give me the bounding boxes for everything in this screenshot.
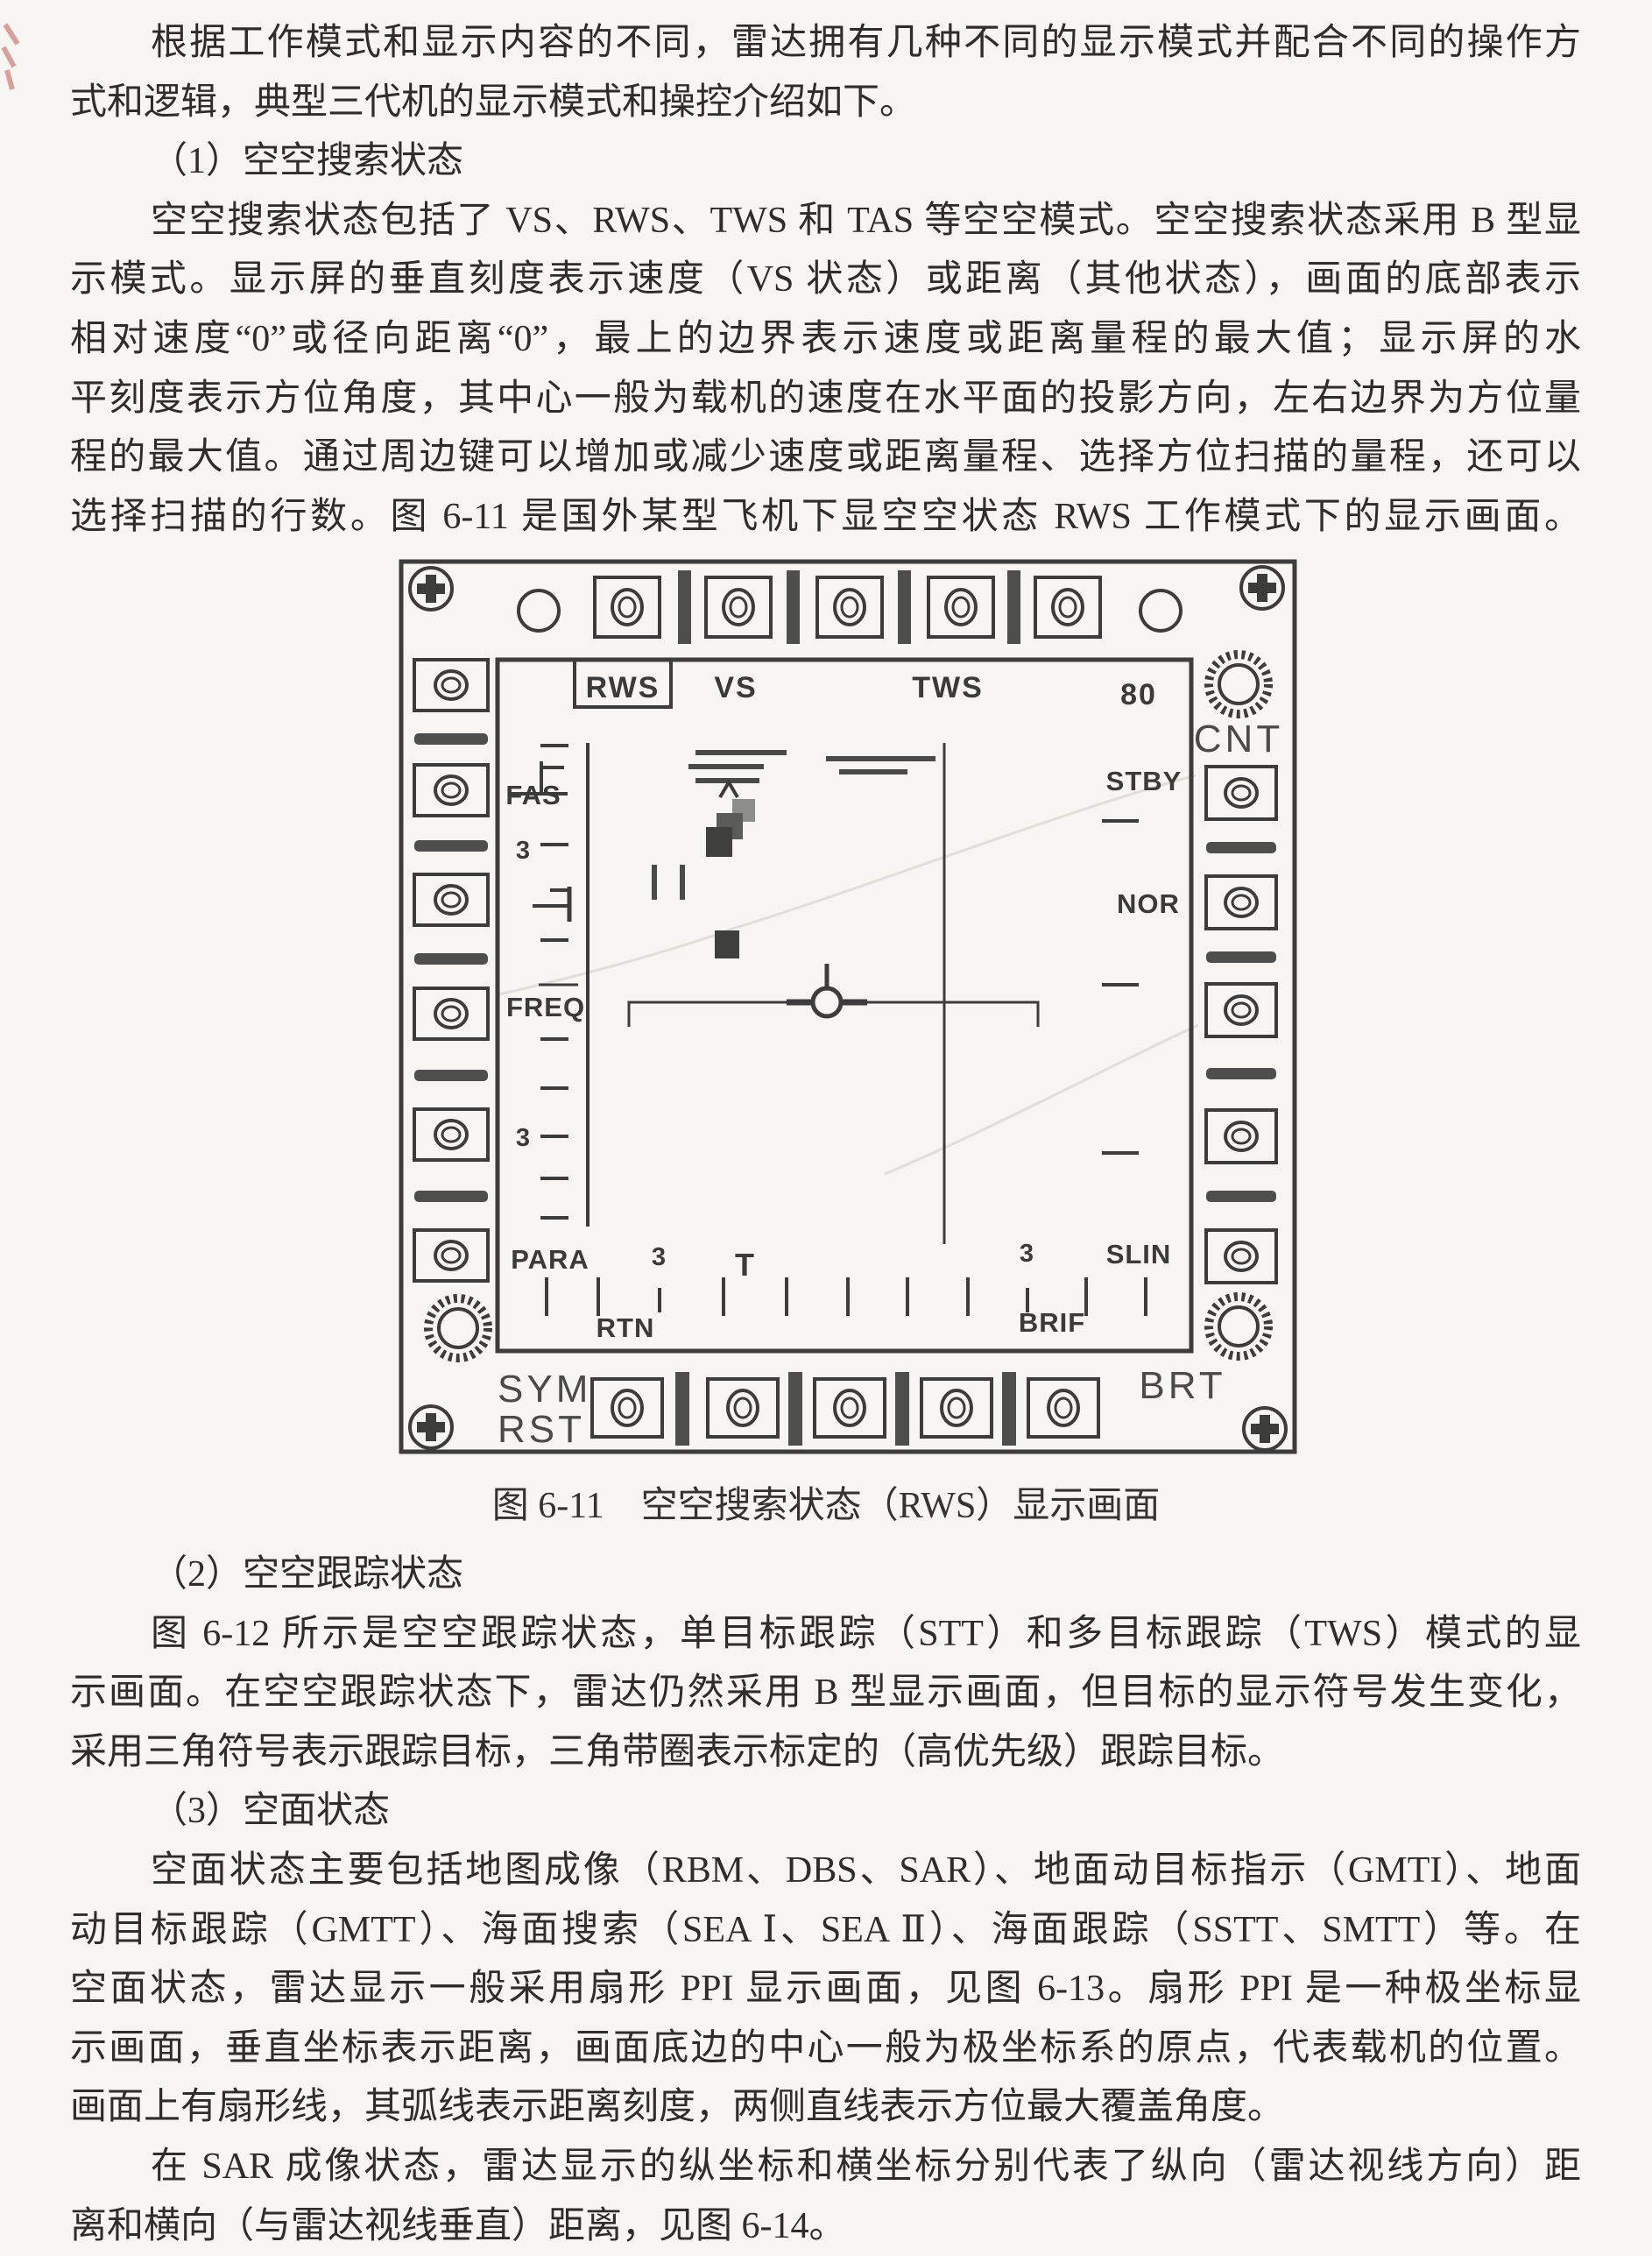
pushbutton-icon: [1206, 767, 1276, 819]
pushbutton-icon: [414, 988, 488, 1039]
figure-6-11: CNT BRT SYM RST RWS VS TWS 80: [394, 556, 1305, 1459]
screw-icon: [410, 568, 452, 610]
mode-rws-label: RWS: [586, 671, 660, 704]
pushbutton-icon: [1206, 876, 1276, 929]
radar-display-figure: CNT BRT SYM RST RWS VS TWS 80: [394, 556, 1305, 1459]
body-line: 示画面，垂直坐标表示距离，画面底边的中心一般为极坐标系的原点，代表载机的位置。: [70, 2019, 1581, 2079]
body-line: 采用三角符号表示跟踪目标，三角带圈表示标定的（高优先级）跟踪目标。: [70, 1723, 1581, 1783]
pushbutton-icon: [1206, 1110, 1276, 1163]
body-line: 图 6-12 所示是空空跟踪状态，单目标跟踪（STT）和多目标跟踪（TWS）模式…: [70, 1605, 1581, 1665]
pushbutton-icon: [414, 660, 488, 711]
target-return-bars: [688, 753, 787, 781]
body-text-bottom: （2）空空跟踪状态 图 6-12 所示是空空跟踪状态，单目标跟踪（STT）和多目…: [70, 1545, 1581, 2256]
section-heading: （3）空面状态: [70, 1782, 1581, 1842]
pushbutton-icon: [708, 1379, 778, 1437]
figure-caption: 图 6-11 空空搜索状态（RWS）显示画面: [0, 1483, 1652, 1529]
body-line: 示模式。显示屏的垂直刻度表示速度（VS 状态）或距离（其他状态），画面的底部表示: [70, 251, 1581, 310]
pushbutton-icon: [414, 1109, 488, 1160]
right-scale-ticks: [1102, 821, 1139, 1153]
pushbutton-icon: [595, 577, 660, 637]
para-label: PARA: [511, 1244, 589, 1275]
bottom-button-row: [592, 1379, 1098, 1437]
body-line: 空空搜索状态包括了 VS、RWS、TWS 和 TAS 等空空模式。空空搜索状态采…: [70, 192, 1581, 251]
pushbutton-icon: [706, 577, 771, 637]
target-blob-cluster: [706, 799, 755, 857]
mode-vs-label: VS: [714, 671, 757, 704]
knob-icon: [428, 1298, 488, 1358]
body-line: 动目标跟踪（GMTT）、海面搜索（SEA Ⅰ、SEA Ⅱ）、海面跟踪（SSTT、…: [70, 1901, 1581, 1961]
range-scale-label: 80: [1120, 678, 1157, 711]
pushbutton-icon: [817, 577, 882, 637]
section-heading: （2）空空跟踪状态: [70, 1545, 1581, 1605]
pushbutton-icon: [592, 1379, 662, 1437]
body-text-top: 根据工作模式和显示内容的不同，雷达拥有几种不同的显示模式并配合不同的操作方 式和…: [70, 14, 1581, 547]
target-square: [715, 930, 739, 958]
target-caret-icon: [720, 782, 738, 797]
pushbutton-icon: [921, 1379, 992, 1437]
freq-label: FREQ: [506, 992, 585, 1022]
stby-label: STBY: [1106, 766, 1183, 796]
fas-label: FAS: [505, 780, 561, 810]
pushbutton-icon: [1035, 577, 1100, 637]
body-line: 式和逻辑，典型三代机的显示模式和操控介绍如下。: [70, 74, 1581, 133]
paper-crease: [499, 775, 1198, 1174]
body-line: 程的最大值。通过周边键可以增加或减少速度或距离量程、选择方位扫描的量程，还可以: [70, 428, 1581, 488]
mode-tws-label: TWS: [912, 671, 984, 704]
body-line: 示画面。在空空跟踪状态下，雷达仍然采用 B 型显示画面，但目标的显示符号发生变化…: [70, 1664, 1581, 1723]
pushbutton-icon: [1028, 1379, 1098, 1437]
nor-label: NOR: [1117, 888, 1180, 919]
scale-3-upper: 3: [516, 837, 530, 865]
indicator-circle: [1140, 591, 1181, 631]
indicator-circle: [519, 591, 559, 631]
slin-label: SLIN: [1106, 1239, 1172, 1269]
pushbutton-icon: [928, 577, 993, 637]
top-button-row: [595, 577, 1100, 637]
body-line: 在 SAR 成像状态，雷达显示的纵坐标和横坐标分别代表了纵向（雷达视线方向）距: [70, 2138, 1581, 2197]
margin-mark: [0, 18, 35, 96]
screw-icon: [410, 1406, 452, 1448]
pushbutton-icon: [414, 765, 488, 816]
cnt-knob-label: CNT: [1194, 718, 1283, 760]
scale-3-lower: 3: [516, 1124, 530, 1152]
brt-knob-label: BRT: [1139, 1364, 1225, 1407]
body-line: 平刻度表示方位角度，其中心一般为载机的速度在水平面的投影方向，左右边界为方位量: [70, 370, 1581, 429]
body-line: 空面状态，雷达显示一般采用扇形 PPI 显示画面，见图 6-13。扇形 PPI …: [70, 1960, 1581, 2019]
body-line: 离和横向（与雷达视线垂直）距离，见图 6-14。: [70, 2197, 1581, 2256]
left-button-column: [414, 660, 488, 1281]
pushbutton-icon: [1206, 984, 1276, 1036]
elevation-command-icon: [533, 887, 571, 922]
body-line: 选择扫描的行数。图 6-11 是国外某型飞机下显空空状态 RWS 工作模式下的显…: [70, 488, 1581, 548]
body-line: 画面上有扇形线，其弧线表示距离刻度，两侧直线表示方位最大覆盖角度。: [70, 2078, 1581, 2138]
azimuth-cursor-T: T: [735, 1247, 754, 1283]
screw-icon: [1241, 567, 1283, 609]
azimuth-3-right: 3: [1020, 1240, 1034, 1268]
knob-icon: [1209, 654, 1268, 714]
section-heading: （1）空空搜索状态: [70, 132, 1581, 192]
sym-label: SYM: [498, 1368, 591, 1411]
ownship-symbol: [787, 964, 867, 1016]
body-line: 空面状态主要包括地图成像（RBM、DBS、SAR）、地面动目标指示（GMTI）、…: [70, 1842, 1581, 1901]
rst-label: RST: [498, 1408, 585, 1451]
azimuth-3-left: 3: [652, 1243, 666, 1271]
knob-icon: [1209, 1297, 1268, 1356]
pushbutton-icon: [414, 1230, 488, 1281]
body-line: 根据工作模式和显示内容的不同，雷达拥有几种不同的显示模式并配合不同的操作方: [70, 14, 1581, 74]
target-tick-pair: [652, 865, 685, 900]
rtn-label: RTN: [597, 1312, 655, 1343]
pushbutton-icon: [1206, 1230, 1276, 1283]
screw-icon: [1244, 1408, 1286, 1450]
body-line: 相对速度“0”或径向距离“0”，最上的边界表示速度或距离量程的最大值；显示屏的水: [70, 310, 1581, 370]
target-return-bars: [826, 759, 935, 772]
pushbutton-icon: [414, 874, 488, 925]
pushbutton-icon: [815, 1379, 885, 1437]
